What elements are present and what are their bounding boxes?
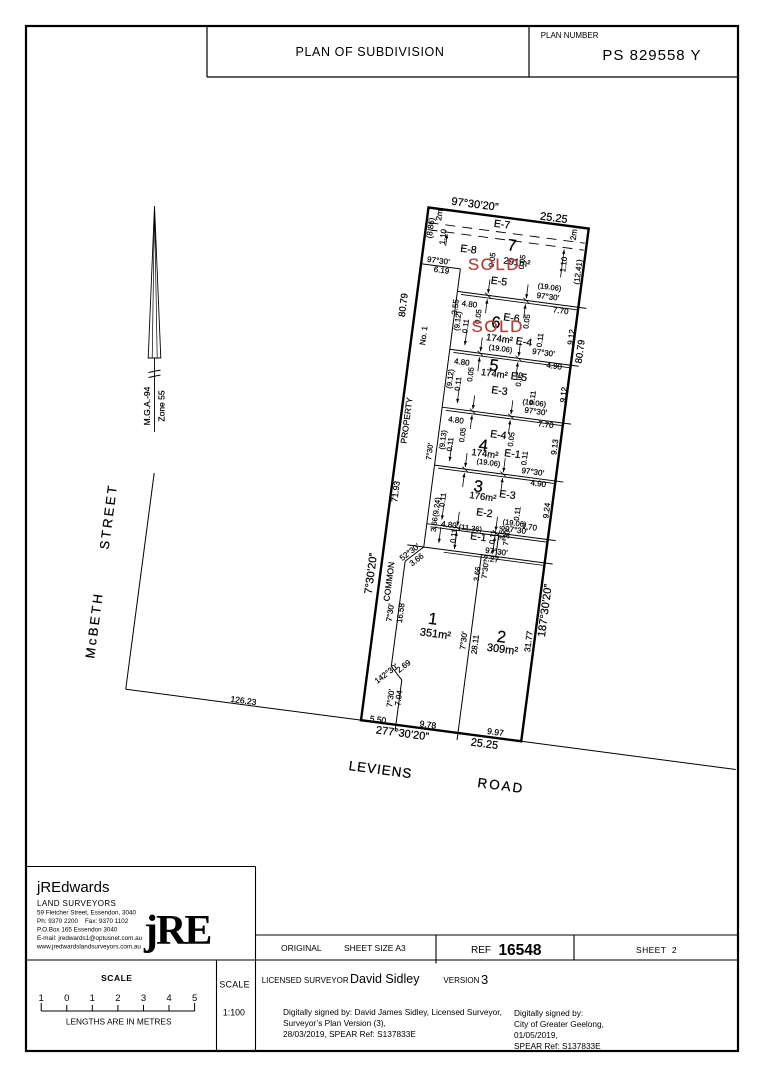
svg-text:jRE: jRE: [143, 908, 210, 954]
svg-text:Ph: 9370 2200 Fax: 9370 110: Ph: 9370 2200 Fax: 9370 1102: [37, 918, 129, 925]
svg-text:E-4: E-4: [515, 335, 533, 349]
svg-text:0.11: 0.11: [460, 319, 471, 334]
svg-text:59 Fletcher Street, Essendon,: 59 Fletcher Street, Essendon, 3040: [37, 910, 137, 917]
svg-text:M.G.A.-94: M.G.A.-94: [142, 386, 152, 425]
svg-text:VERSION: VERSION: [443, 976, 479, 985]
svg-text:1: 1: [90, 993, 95, 1004]
svg-text:5: 5: [192, 993, 197, 1004]
svg-text:0.05: 0.05: [457, 427, 468, 443]
svg-text:E-1: E-1: [504, 447, 522, 461]
svg-text:E-7: E-7: [493, 218, 511, 232]
svg-text:1: 1: [39, 993, 44, 1004]
svg-text:3: 3: [481, 972, 488, 987]
svg-text:David Sidley: David Sidley: [350, 972, 420, 986]
svg-text:0.05: 0.05: [506, 431, 517, 447]
svg-text:SPEAR Ref: S137833E: SPEAR Ref: S137833E: [514, 1041, 601, 1051]
svg-text:ORIGINAL: ORIGINAL: [281, 943, 322, 953]
svg-text:3: 3: [141, 993, 146, 1004]
svg-text:4: 4: [166, 993, 171, 1004]
svg-text:E-mail: jredwards1@optusnet.co: E-mail: jredwards1@optusnet.com.au: [37, 935, 143, 942]
svg-text:E-5: E-5: [490, 275, 508, 289]
svg-text:0.11: 0.11: [535, 333, 546, 348]
svg-text:Digitally signed by:: Digitally signed by:: [514, 1008, 583, 1018]
svg-text:3.66: 3.66: [429, 517, 440, 533]
svg-text:www.jredwardslandsurveyors.com: www.jredwardslandsurveyors.com.au: [36, 944, 141, 951]
svg-text:LAND SURVEYORS: LAND SURVEYORS: [37, 899, 116, 908]
svg-text:0.11: 0.11: [445, 437, 456, 452]
svg-text:E-1: E-1: [470, 530, 488, 544]
svg-text:2: 2: [115, 993, 120, 1004]
svg-text:0.11: 0.11: [437, 492, 448, 507]
svg-text:0.05: 0.05: [514, 371, 525, 387]
svg-text:SCALE: SCALE: [219, 980, 249, 990]
svg-text:jREdwards: jREdwards: [36, 879, 110, 896]
svg-text:SCALE: SCALE: [101, 973, 132, 983]
svg-text:City of Greater Geelong,: City of Greater Geelong,: [514, 1019, 604, 1029]
svg-text:01/05/2019,: 01/05/2019,: [514, 1030, 558, 1040]
svg-text:PS 829558 Y: PS 829558 Y: [602, 47, 701, 64]
svg-text:16548: 16548: [498, 942, 541, 959]
svg-text:SOLD: SOLD: [472, 317, 524, 336]
svg-text:0.11: 0.11: [519, 451, 530, 466]
svg-text:LICENSED SURVEYOR: LICENSED SURVEYOR: [262, 976, 349, 985]
svg-text:PLAN NUMBER: PLAN NUMBER: [541, 31, 599, 40]
svg-text:REF: REF: [471, 945, 491, 956]
svg-text:P.O.Box 165 Essendon 3040: P.O.Box 165 Essendon 3040: [37, 927, 118, 934]
svg-text:E-3: E-3: [499, 488, 517, 502]
svg-text:0.11: 0.11: [453, 376, 464, 391]
svg-text:SHEET 2: SHEET 2: [636, 945, 677, 955]
svg-text:28/03/2019, SPEAR Ref: S137833: 28/03/2019, SPEAR Ref: S137833E: [283, 1029, 416, 1039]
svg-text:2m: 2m: [569, 228, 579, 241]
svg-text:SOLD: SOLD: [468, 255, 520, 274]
svg-text:E-2: E-2: [475, 506, 493, 520]
svg-text:Zone 55: Zone 55: [156, 390, 166, 421]
svg-text:LENGTHS ARE IN METRES: LENGTHS ARE IN METRES: [66, 1017, 172, 1027]
svg-text:E-4: E-4: [489, 428, 507, 442]
svg-text:1:100: 1:100: [223, 1008, 245, 1018]
svg-text:0.05: 0.05: [465, 367, 476, 383]
svg-text:0: 0: [64, 993, 69, 1004]
svg-text:Surveyor’s Plan Version (3),: Surveyor’s Plan Version (3),: [283, 1018, 386, 1028]
svg-text:Digitally signed by: David Jam: Digitally signed by: David James Sidley,…: [283, 1007, 502, 1017]
svg-text:PLAN OF SUBDIVISION: PLAN OF SUBDIVISION: [296, 45, 445, 59]
svg-text:0.11: 0.11: [448, 528, 459, 543]
svg-text:E-3: E-3: [491, 384, 509, 398]
svg-text:SHEET SIZE A3: SHEET SIZE A3: [344, 943, 406, 953]
